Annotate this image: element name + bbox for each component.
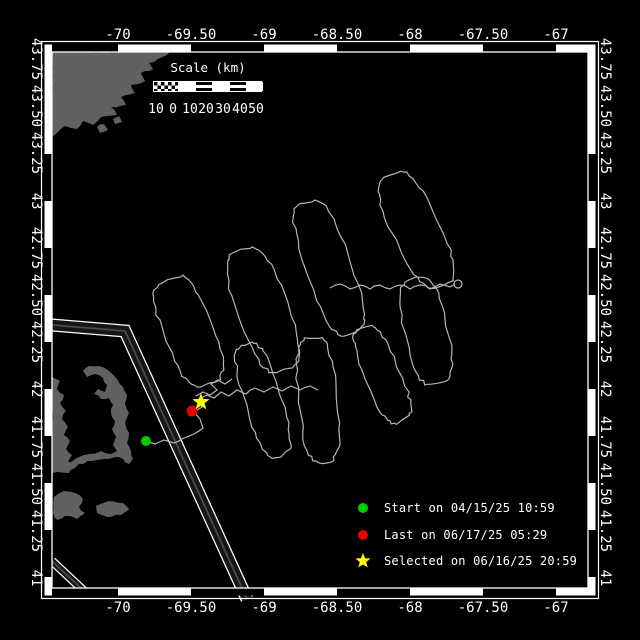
lon-tick-label-bottom: -67 bbox=[543, 600, 568, 616]
scale-bar-graphic bbox=[153, 81, 262, 92]
lon-tick-label-top: -69.50 bbox=[166, 27, 217, 43]
lat-tick-label-left: 43.50 bbox=[28, 85, 44, 127]
last-marker[interactable] bbox=[187, 406, 198, 417]
start-marker[interactable] bbox=[141, 436, 151, 446]
scale-bar-number-3: 10 bbox=[182, 102, 198, 117]
lat-tick-label-left: 41 bbox=[28, 570, 44, 587]
frame-band-black-bottom bbox=[483, 589, 556, 596]
lat-tick-label-right: 41.50 bbox=[597, 463, 613, 505]
lon-tick-label-top: -68.50 bbox=[312, 27, 363, 43]
frame-band-black-right bbox=[589, 342, 596, 389]
lat-tick-label-left: 42 bbox=[28, 381, 44, 398]
legend-dot-icon bbox=[355, 500, 371, 516]
lat-tick-label-right: 43.25 bbox=[597, 132, 613, 174]
frame-band-black-top bbox=[337, 45, 410, 52]
lat-tick-label-left: 43.25 bbox=[28, 132, 44, 174]
frame-band-black-left bbox=[45, 154, 52, 201]
lat-tick-label-left: 42.25 bbox=[28, 321, 44, 363]
scale-bar-segment-1 bbox=[178, 82, 195, 91]
map-svg bbox=[0, 0, 640, 640]
map-figure: Scale (km) 1001020304050 Start on 04/15/… bbox=[0, 0, 640, 640]
lon-tick-label-bottom: -70 bbox=[105, 600, 130, 616]
lat-tick-label-right: 43.50 bbox=[597, 85, 613, 127]
frame-band-black-left bbox=[45, 436, 52, 483]
legend-star-icon bbox=[355, 553, 371, 569]
frame-band-black-right bbox=[589, 436, 596, 483]
lat-tick-label-right: 42 bbox=[597, 381, 613, 398]
frame-band-black-top bbox=[483, 45, 556, 52]
scale-bar-segment-2 bbox=[195, 82, 212, 91]
lat-tick-label-right: 43 bbox=[597, 193, 613, 210]
legend-label-2: Last on 06/17/25 05:29 bbox=[384, 528, 547, 542]
lat-tick-label-left: 42.50 bbox=[28, 274, 44, 316]
lon-tick-label-bottom: -69.50 bbox=[166, 600, 217, 616]
map-canvas bbox=[0, 0, 640, 640]
lon-tick-label-top: -67 bbox=[543, 27, 568, 43]
legend-label-1: Start on 04/15/25 10:59 bbox=[384, 501, 555, 515]
frame-band-black-right bbox=[589, 154, 596, 201]
lat-tick-label-right: 42.25 bbox=[597, 321, 613, 363]
lon-tick-label-bottom: -68 bbox=[397, 600, 422, 616]
scale-bar-segment-3 bbox=[212, 82, 229, 91]
lon-tick-label-top: -69 bbox=[251, 27, 276, 43]
lat-tick-label-left: 41.50 bbox=[28, 463, 44, 505]
frame-band-black-left bbox=[45, 248, 52, 295]
frame-band-black-left bbox=[45, 530, 52, 577]
scale-bar-number-6: 40 bbox=[232, 102, 248, 117]
scale-bar-number-5: 30 bbox=[215, 102, 231, 117]
lat-tick-label-right: 43.75 bbox=[597, 38, 613, 80]
scale-bar-number-7: 50 bbox=[248, 102, 264, 117]
scale-bar-segment-5 bbox=[246, 82, 263, 91]
frame-band-black-top bbox=[191, 45, 264, 52]
legend-item-3: Selected on 06/16/25 20:59 bbox=[355, 553, 577, 569]
lat-tick-label-left: 41.75 bbox=[28, 416, 44, 458]
lon-tick-label-bottom: -67.50 bbox=[458, 600, 509, 616]
scale-bar-title: Scale (km) bbox=[170, 60, 245, 75]
scale-bar-checker bbox=[154, 82, 179, 91]
frame-band-black-bottom bbox=[52, 589, 118, 596]
lon-tick-label-bottom: -69 bbox=[251, 600, 276, 616]
scale-bar-number-4: 20 bbox=[198, 102, 214, 117]
frame-band-black-right bbox=[589, 530, 596, 577]
lat-tick-label-left: 43 bbox=[28, 193, 44, 210]
lat-tick-label-right: 42.75 bbox=[597, 227, 613, 269]
frame-band-black-bottom bbox=[191, 589, 264, 596]
frame-band-black-left bbox=[45, 342, 52, 389]
lon-tick-label-top: -67.50 bbox=[458, 27, 509, 43]
lon-tick-label-top: -68 bbox=[397, 27, 422, 43]
scale-bar-number-2: 0 bbox=[169, 102, 177, 117]
lat-tick-label-right: 41.25 bbox=[597, 510, 613, 552]
scale-bar-segment-4 bbox=[229, 82, 246, 91]
lat-tick-label-left: 41.25 bbox=[28, 510, 44, 552]
legend-item-1: Start on 04/15/25 10:59 bbox=[355, 500, 555, 516]
lon-tick-label-top: -70 bbox=[105, 27, 130, 43]
frame-band-black-bottom bbox=[337, 589, 410, 596]
legend-item-2: Last on 06/17/25 05:29 bbox=[355, 527, 547, 543]
scale-bar: Scale (km) 1001020304050 bbox=[140, 60, 290, 122]
scale-bar-number-1: 10 bbox=[148, 102, 164, 117]
frame-band-black-right bbox=[589, 248, 596, 295]
frame-band-black-top bbox=[52, 45, 118, 52]
legend-label-3: Selected on 06/16/25 20:59 bbox=[384, 554, 577, 568]
lon-tick-label-bottom: -68.50 bbox=[312, 600, 363, 616]
lat-tick-label-left: 43.75 bbox=[28, 38, 44, 80]
lat-tick-label-right: 42.50 bbox=[597, 274, 613, 316]
lat-tick-label-right: 41.75 bbox=[597, 416, 613, 458]
lat-tick-label-left: 42.75 bbox=[28, 227, 44, 269]
legend-dot-icon bbox=[355, 527, 371, 543]
lat-tick-label-right: 41 bbox=[597, 570, 613, 587]
